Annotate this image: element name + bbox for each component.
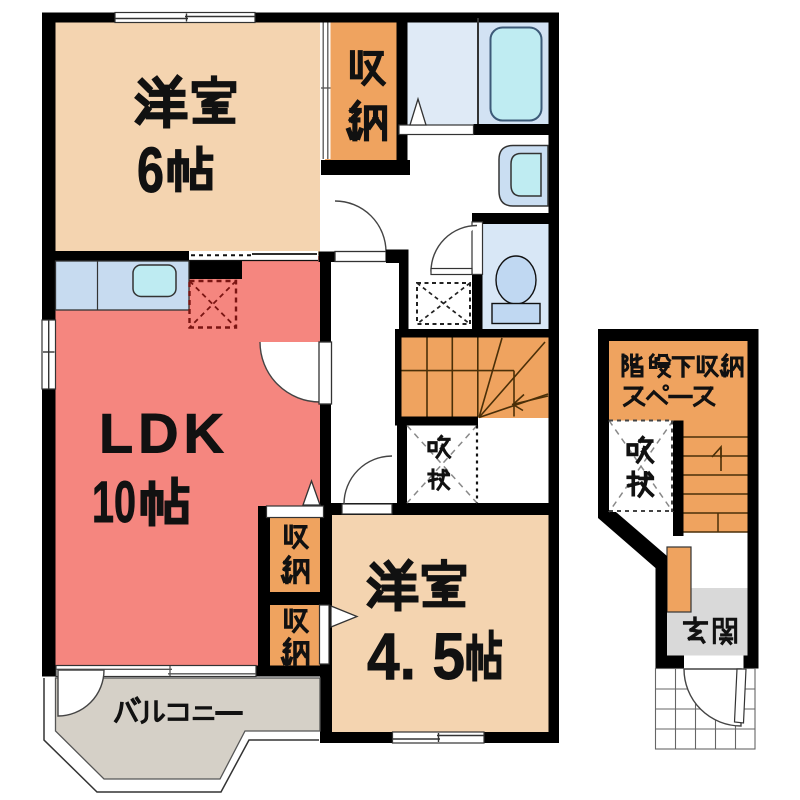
svg-text:6: 6 <box>137 134 164 206</box>
svg-text:10: 10 <box>92 470 136 535</box>
svg-text:4. 5: 4. 5 <box>367 619 465 693</box>
svg-text:LDK: LDK <box>99 402 236 465</box>
